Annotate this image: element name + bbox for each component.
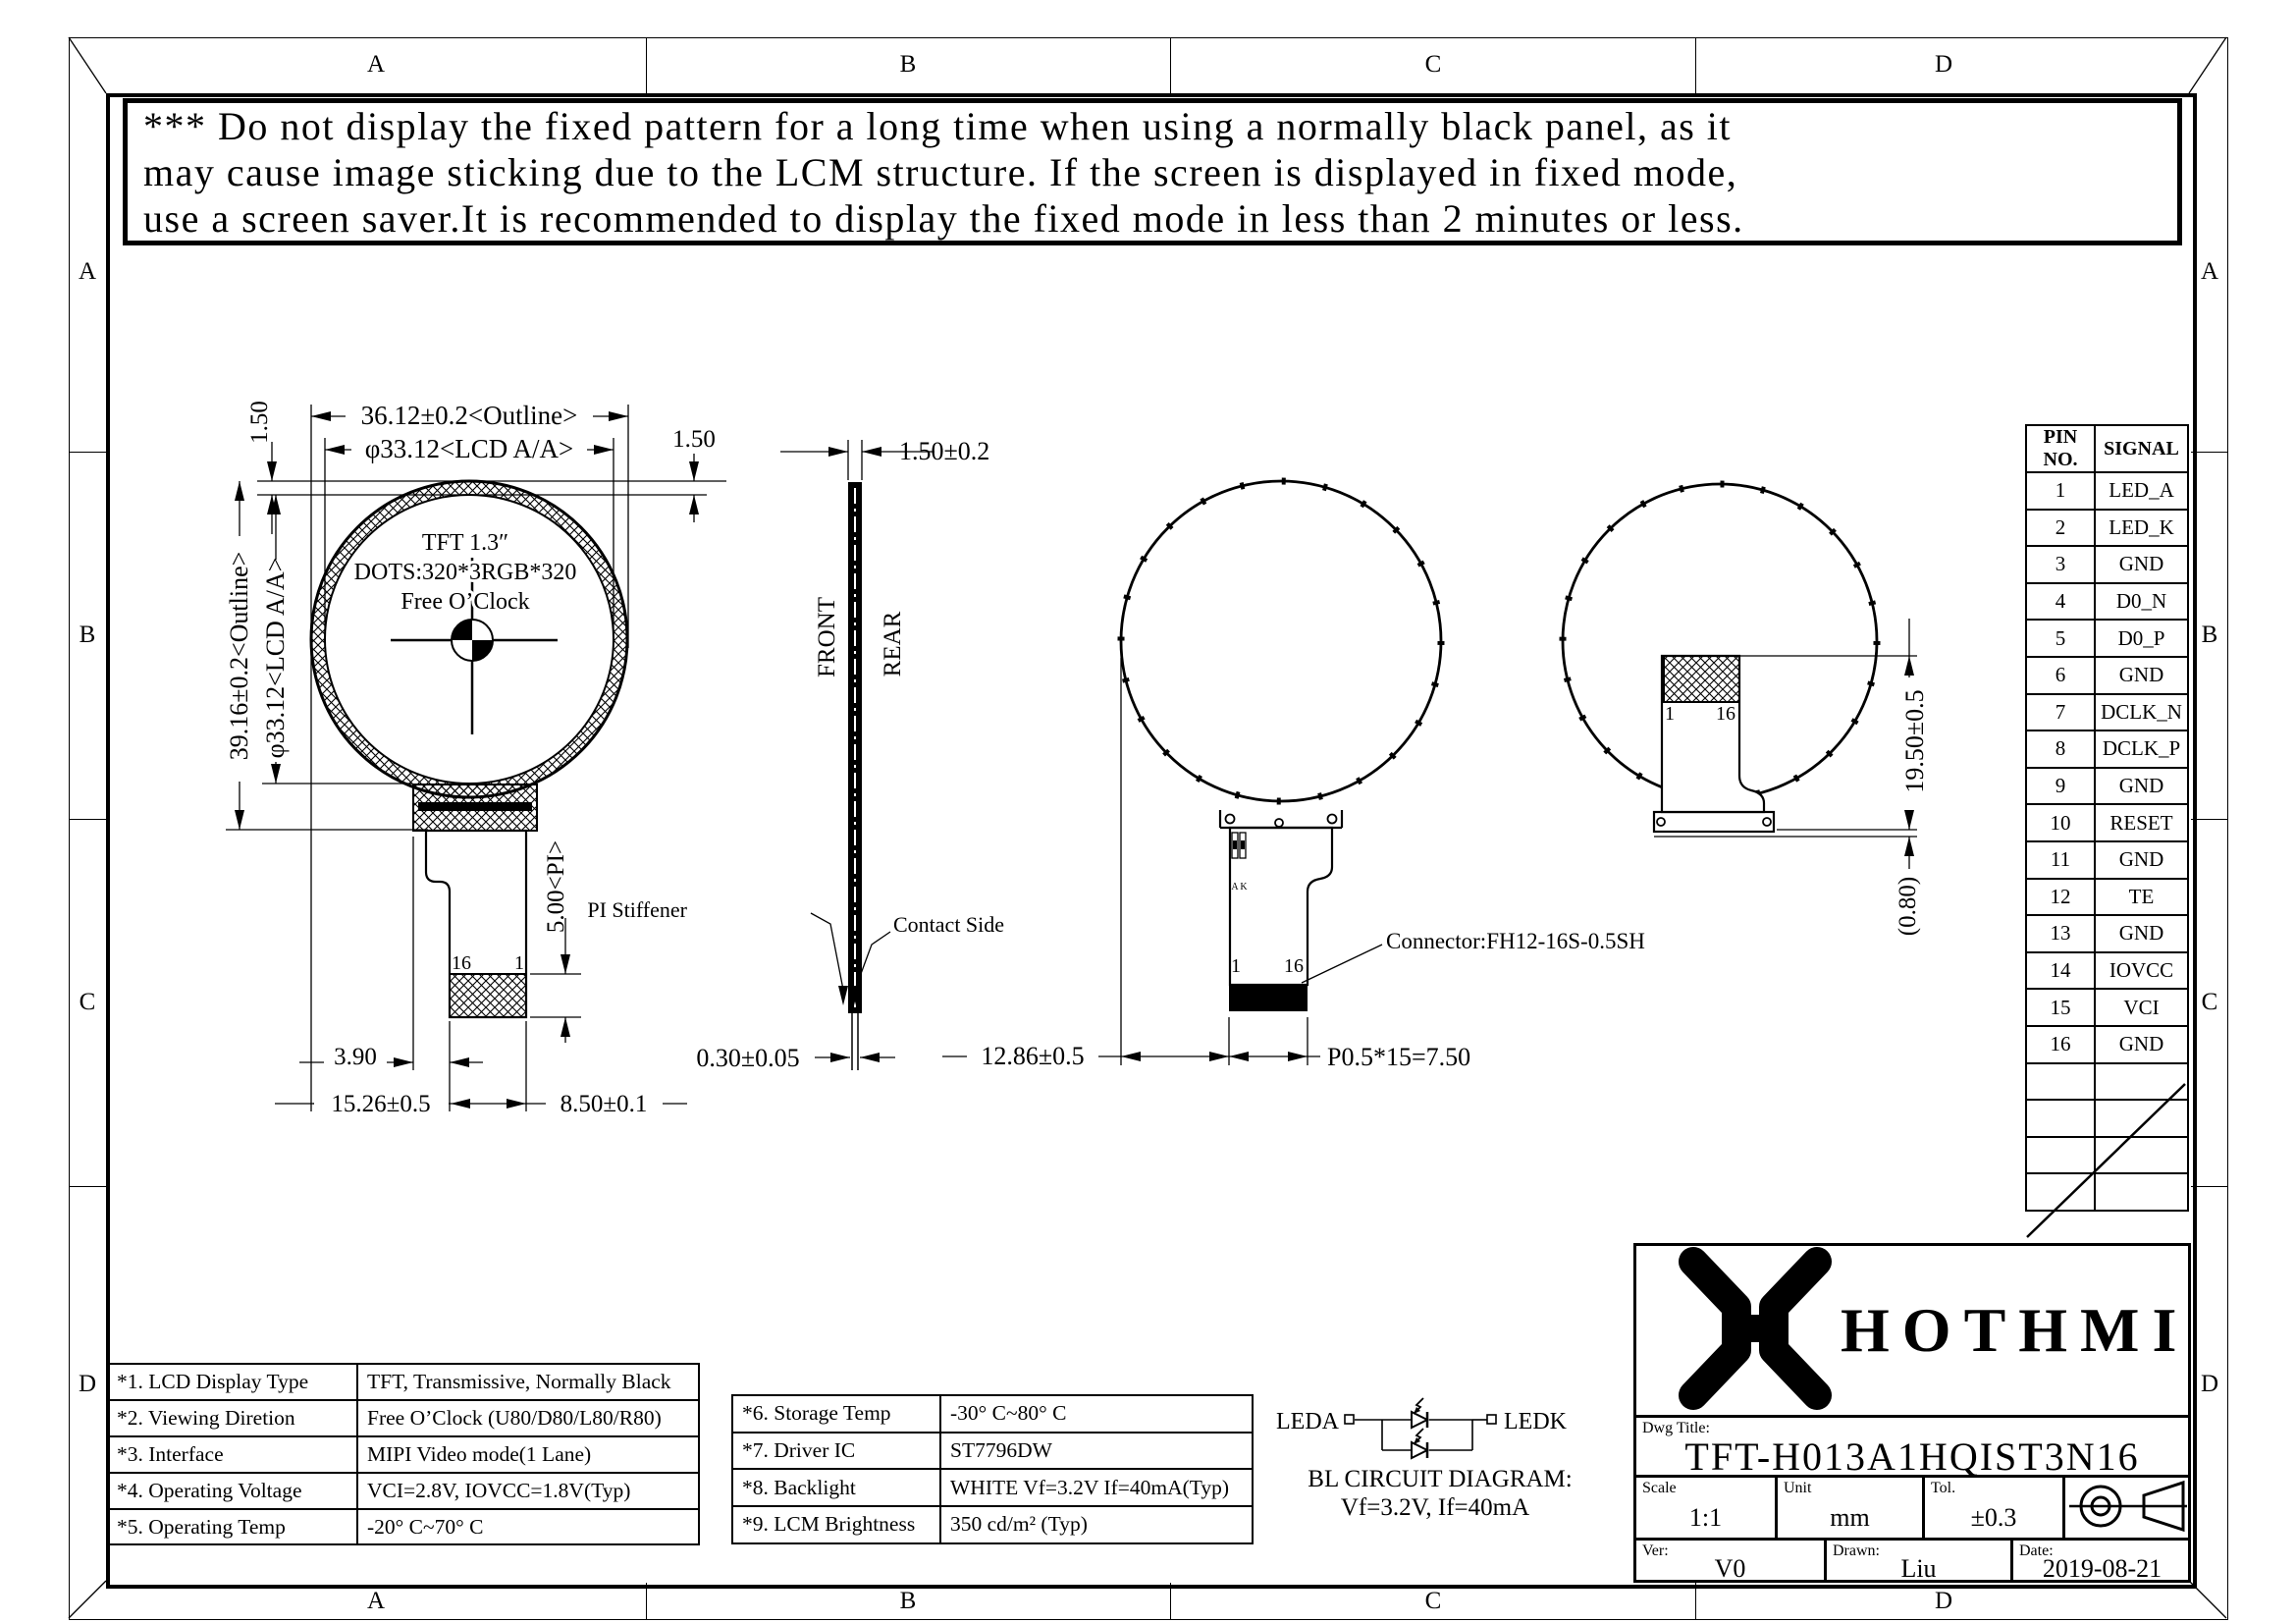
panel-size-label: TFT 1.3″ xyxy=(422,530,508,556)
rear-view: A K 1 16 12.86±0.5 P0.5*15=7.50 Connecto… xyxy=(942,481,1645,1071)
folded-view: 1 16 19.50±0.5 (0.80) xyxy=(1563,484,1929,936)
front-neck-bar xyxy=(418,802,532,811)
rear-pin1-label: 1 xyxy=(1231,955,1241,977)
dim-pitch: P0.5*15=7.50 xyxy=(1327,1043,1470,1071)
folded-connector-area xyxy=(1664,656,1739,702)
folded-pin16-label: 16 xyxy=(1716,703,1735,725)
corner-diagonals xyxy=(69,37,2226,1618)
pi-stiffener-label: PI Stiffener xyxy=(587,897,687,922)
rear-connector xyxy=(1229,985,1308,1011)
dim-ring-width: 1.50 xyxy=(246,401,273,444)
dim-lcd-width: φ33.12<LCD A/A> xyxy=(365,434,574,463)
front-connector-area xyxy=(450,974,526,1017)
leda-terminal xyxy=(1345,1415,1354,1424)
front-pin16-label: 16 xyxy=(452,952,471,974)
folded-flange xyxy=(1654,812,1774,832)
dim-390: 3.90 xyxy=(334,1044,377,1070)
dim-fpc-thickness: 0.30±0.05 xyxy=(696,1044,799,1072)
ledk-terminal xyxy=(1487,1415,1496,1424)
dim-lcd-height: φ33.12<LCD A/A> xyxy=(261,558,290,759)
led-a-label: A xyxy=(1231,882,1239,893)
dim-outline-width: 36.12±0.2<Outline> xyxy=(361,401,578,430)
drawing-sheet: A B C D A B C D A B C D A B C D *** Do n… xyxy=(0,0,2296,1623)
dim-outline-height: 39.16±0.2<Outline> xyxy=(225,552,253,761)
panel-dots-label: DOTS:320*3RGB*320 xyxy=(354,560,577,585)
rear-outline-circle xyxy=(1121,481,1441,801)
rear-pin16-label: 16 xyxy=(1284,955,1304,977)
dim-gap-right: 1.50 xyxy=(672,426,716,453)
front-side-label: FRONT xyxy=(814,597,840,677)
bl-circuit-subtitle: Vf=3.2V, If=40mA xyxy=(1341,1494,1529,1521)
bl-circuit: LEDA LEDK BL CIRCUIT DIAGRAM: Vf=3.2V, I… xyxy=(1276,1398,1573,1521)
dim-thickness: 1.50±0.2 xyxy=(899,437,989,465)
dim-folded-gap: (0.80) xyxy=(1895,877,1921,936)
dim-1526: 15.26±0.5 xyxy=(331,1091,430,1117)
drawing-canvas: TFT 1.3″ DOTS:320*3RGB*320 Free O’Clock … xyxy=(0,0,2296,1623)
connector-label: Connector:FH12-16S-0.5SH xyxy=(1386,929,1645,953)
contact-side-label: Contact Side xyxy=(893,912,1004,937)
led-k-label: K xyxy=(1240,882,1248,893)
dim-850: 8.50±0.1 xyxy=(561,1091,648,1117)
front-pin1-label: 1 xyxy=(514,952,524,974)
folded-pin1-label: 1 xyxy=(1665,703,1675,725)
ledk-label: LEDK xyxy=(1504,1409,1568,1434)
panel-clock-label: Free O’Clock xyxy=(400,589,529,615)
leda-label: LEDA xyxy=(1276,1409,1340,1434)
dim-pi-length: 5.00<PI> xyxy=(543,840,569,933)
table-void-diagonal xyxy=(2027,1084,2185,1237)
bl-circuit-title: BL CIRCUIT DIAGRAM: xyxy=(1308,1466,1572,1492)
rear-side-label: REAR xyxy=(880,611,906,676)
dim-rear-width: 12.86±0.5 xyxy=(981,1042,1084,1070)
dim-folded-height: 19.50±0.5 xyxy=(1900,689,1929,792)
front-view: TFT 1.3″ DOTS:320*3RGB*320 Free O’Clock … xyxy=(311,481,627,1017)
side-view: FRONT REAR 1.50±0.2 PI Stiffener Contact… xyxy=(587,437,1004,1072)
